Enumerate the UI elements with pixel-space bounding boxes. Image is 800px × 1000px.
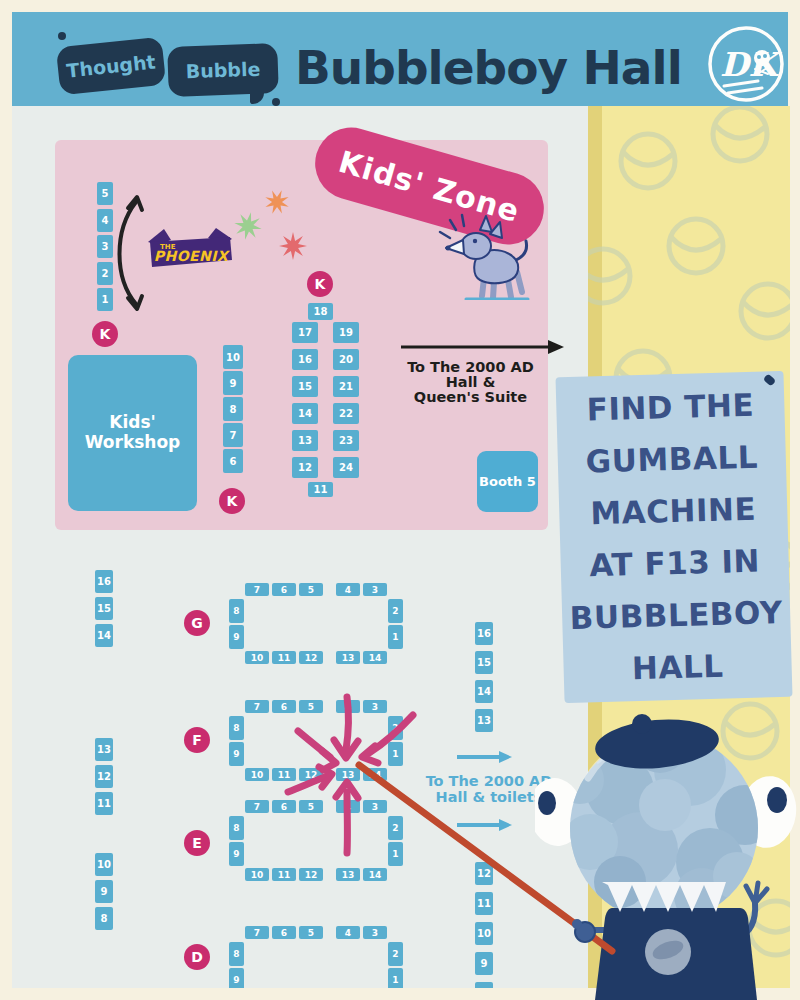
row-badge-g: G bbox=[184, 610, 210, 636]
kids-badge-k: K bbox=[92, 321, 118, 347]
island-right-col: 21 bbox=[388, 599, 403, 649]
row-badge-d: D bbox=[184, 944, 210, 970]
bubbleboy-hall-map: Thought Bubble Bubbleboy Hall DK Kids' Z bbox=[0, 0, 800, 1000]
booth-cell: 6 bbox=[272, 926, 296, 939]
sign-text-line: FIND THE bbox=[556, 378, 785, 436]
booth-cell: 19 bbox=[333, 322, 359, 343]
booth-cell: 13 bbox=[336, 651, 360, 664]
gumball-machine-character bbox=[535, 688, 800, 1000]
row-g-island: 765 43 89 21 101112 1314 bbox=[228, 583, 404, 664]
kids-island-right-column: 192021222324 bbox=[333, 322, 359, 478]
star-green-icon bbox=[231, 209, 264, 242]
booth-cell: 4 bbox=[336, 926, 360, 939]
booth-cell: 14 bbox=[475, 680, 493, 703]
logo-bubble-bubble: Bubble bbox=[167, 43, 279, 97]
gumball-sign: FIND THEGUMBALLMACHINEAT F13 INBUBBLEBOY… bbox=[555, 371, 792, 703]
booth-cell: 5 bbox=[299, 583, 323, 596]
booth-cell: 13 bbox=[95, 738, 113, 761]
booth-cell: 4 bbox=[336, 700, 360, 713]
booth-cell: 10 bbox=[245, 651, 269, 664]
right-wall-booths-8to12: 12111098 bbox=[475, 862, 493, 1000]
left-wall-booths-14to16: 161514 bbox=[95, 570, 113, 647]
booth-cell: 11 bbox=[475, 892, 493, 915]
skull-icon bbox=[754, 50, 770, 66]
booth-cell: 10 bbox=[95, 853, 113, 876]
booth-cell: 22 bbox=[333, 403, 359, 424]
booth-cell: 24 bbox=[333, 457, 359, 478]
row-badge-e: E bbox=[184, 830, 210, 856]
island-top-right: 43 bbox=[336, 583, 387, 596]
booth-cell: 16 bbox=[95, 570, 113, 593]
booth-cell: 7 bbox=[245, 700, 269, 713]
booth-cell: 15 bbox=[95, 597, 113, 620]
booth-cell: 9 bbox=[223, 371, 243, 395]
booth-cell: 2 bbox=[388, 716, 403, 740]
logo-bubble-thought: Thought bbox=[56, 37, 166, 96]
booth-cell: 7 bbox=[245, 800, 269, 813]
booth-cell: 3 bbox=[363, 583, 387, 596]
booth-cell: 8 bbox=[229, 942, 244, 966]
booth-cell: 1 bbox=[388, 625, 403, 649]
kids-island-11to24: 18 171615141312 192021222324 11 bbox=[292, 303, 359, 497]
booth-cell: 1 bbox=[388, 742, 403, 766]
booth-cell: 14 bbox=[363, 768, 387, 781]
booth-cell: 20 bbox=[333, 349, 359, 370]
booth-cell: 14 bbox=[363, 651, 387, 664]
row-f-island: 765 43 89 21 101112 1314 bbox=[228, 700, 404, 781]
sign-text-line: AT F13 IN bbox=[560, 534, 789, 592]
island-top-left: 765 bbox=[245, 700, 323, 713]
booth-cell: 4 bbox=[336, 800, 360, 813]
booth-cell: 2 bbox=[97, 262, 113, 285]
exit-arrow-right-top bbox=[455, 750, 513, 764]
booth-cell: 8 bbox=[229, 716, 244, 740]
island-bottom-left: 101112 bbox=[245, 651, 323, 664]
sign-text-line: GUMBALL bbox=[557, 430, 786, 488]
booth-cell: 5 bbox=[299, 800, 323, 813]
sign-text-line: MACHINE bbox=[559, 482, 788, 540]
booth-cell: 7 bbox=[245, 926, 269, 939]
booth-cell: 2 bbox=[388, 816, 403, 840]
island-right-col: 21 bbox=[388, 816, 403, 866]
booth-cell: 15 bbox=[475, 651, 493, 674]
dk-logo: DK bbox=[704, 20, 788, 108]
booth-cell: 9 bbox=[229, 842, 244, 866]
island-left-col: 89 bbox=[229, 599, 244, 649]
stars-decoration bbox=[225, 182, 320, 267]
booth-cell: 9 bbox=[229, 742, 244, 766]
phoenix-logo: THE PHOENIX bbox=[144, 226, 236, 272]
star-red-icon bbox=[279, 232, 307, 260]
booth-cell: 3 bbox=[363, 926, 387, 939]
kids-booth-column-6to10: 109876 bbox=[223, 345, 243, 473]
booth-cell: 18 bbox=[308, 303, 333, 320]
booth-cell: 11 bbox=[272, 651, 296, 664]
booth-cell: 7 bbox=[223, 423, 243, 447]
booth-cell: 9 bbox=[475, 952, 493, 975]
kids-badge-k: K bbox=[307, 271, 333, 297]
island-bottom-right: 1314 bbox=[336, 651, 387, 664]
booth-cell: 16 bbox=[292, 349, 318, 370]
booth-cell: 12 bbox=[475, 862, 493, 885]
booth-cell: 11 bbox=[272, 868, 296, 881]
booth-5-block: Booth 5 bbox=[477, 451, 538, 512]
island-top-right: 43 bbox=[336, 700, 387, 713]
booth-cell: 2 bbox=[388, 942, 403, 966]
island-bottom-right: 1314 bbox=[336, 868, 387, 881]
island-left-col: 89 bbox=[229, 816, 244, 866]
island-top-left: 765 bbox=[245, 926, 323, 939]
booth-cell: 13 bbox=[292, 430, 318, 451]
island-left-col: 89 bbox=[229, 942, 244, 992]
booth-cell: 10 bbox=[245, 868, 269, 881]
island-bottom-right-f13: 1314 bbox=[336, 768, 387, 781]
header-banner: Thought Bubble Bubbleboy Hall DK bbox=[12, 12, 788, 106]
logo-word-bubble: Bubble bbox=[185, 58, 260, 83]
booth-cell: 13 bbox=[336, 868, 360, 881]
row-e-island: 765 43 89 21 101112 1314 bbox=[228, 800, 404, 881]
sign-text-line: BUBBLEBOY bbox=[561, 586, 790, 644]
booth-cell: 6 bbox=[223, 449, 243, 473]
booth-cell: 8 bbox=[229, 816, 244, 840]
island-right-col: 21 bbox=[388, 716, 403, 766]
booth-cell: 8 bbox=[223, 397, 243, 421]
booth-cell: 14 bbox=[95, 624, 113, 647]
booth-cell: 12 bbox=[299, 768, 323, 781]
logo-bubble-tail-icon bbox=[250, 92, 264, 104]
bark-lines-icon bbox=[440, 215, 464, 238]
booth-cell: 2 bbox=[388, 599, 403, 623]
kids-workshop-label-line1: Kids' bbox=[109, 413, 156, 433]
booth-cell: 4 bbox=[336, 583, 360, 596]
kids-booth-column-1to5: 54321 bbox=[97, 182, 113, 311]
booth-cell: 16 bbox=[475, 622, 493, 645]
exit-arrow-right-bottom bbox=[455, 818, 513, 832]
booth-cell: 1 bbox=[388, 842, 403, 866]
phoenix-name-text: PHOENIX bbox=[154, 248, 230, 264]
booth-cell: 12 bbox=[292, 457, 318, 478]
machine-claw bbox=[746, 883, 767, 903]
booth-cell: 3 bbox=[97, 235, 113, 258]
kids-workshop-label-line2: Workshop bbox=[85, 433, 181, 453]
left-wall-booths-8to10: 1098 bbox=[95, 853, 113, 930]
dog-illustration bbox=[432, 212, 532, 300]
booth-cell: 10 bbox=[223, 345, 243, 369]
booth-cell: 12 bbox=[95, 765, 113, 788]
island-bottom-left: 101112 bbox=[245, 768, 323, 781]
dk-monogram-text: DK bbox=[720, 45, 783, 84]
booth-cell: 11 bbox=[95, 792, 113, 815]
island-right-col: 21 bbox=[388, 942, 403, 992]
booth-cell: 10 bbox=[245, 768, 269, 781]
booth-cell: 5 bbox=[97, 182, 113, 205]
booth-cell: 1 bbox=[97, 288, 113, 311]
exit-note-line: Hall & bbox=[388, 375, 553, 390]
island-top-left: 765 bbox=[245, 583, 323, 596]
booth-cell: 6 bbox=[272, 583, 296, 596]
booth-cell: 11 bbox=[272, 768, 296, 781]
booth-cell: 5 bbox=[299, 700, 323, 713]
booth-cell: 14 bbox=[363, 868, 387, 881]
booth-cell: 13 bbox=[336, 768, 360, 781]
booth-cell: 23 bbox=[333, 430, 359, 451]
row-badge-f: F bbox=[184, 727, 210, 753]
booth-cell: 8 bbox=[95, 907, 113, 930]
right-wall-booths-13to16: 16151413 bbox=[475, 622, 493, 732]
booth-cell: 15 bbox=[292, 376, 318, 397]
booth-cell: 12 bbox=[299, 651, 323, 664]
logo-dot-icon bbox=[272, 98, 280, 106]
exit-arrow-kids-zone bbox=[398, 338, 566, 356]
exit-note-kids-zone: To The 2000 AD Hall & Queen's Suite bbox=[388, 360, 553, 405]
kids-workshop-block: Kids' Workshop bbox=[68, 355, 197, 511]
booth-cell: 12 bbox=[299, 868, 323, 881]
island-bottom-left: 101112 bbox=[245, 868, 323, 881]
booth-cell: 4 bbox=[97, 209, 113, 232]
booth-cell: 6 bbox=[272, 800, 296, 813]
island-top-right: 43 bbox=[336, 926, 387, 939]
island-left-col: 89 bbox=[229, 716, 244, 766]
kids-island-left-column: 171615141312 bbox=[292, 322, 318, 478]
exit-note-line: To The 2000 AD bbox=[388, 360, 553, 375]
logo-word-thought: Thought bbox=[65, 50, 156, 81]
booth-cell: 9 bbox=[229, 625, 244, 649]
booth-cell: 5 bbox=[299, 926, 323, 939]
booth-cell: 21 bbox=[333, 376, 359, 397]
logo-dot-icon bbox=[58, 32, 66, 40]
booth-cell: 7 bbox=[245, 583, 269, 596]
left-wall-booths-11to13: 131211 bbox=[95, 738, 113, 815]
star-orange-icon bbox=[261, 186, 294, 219]
booth-cell: 14 bbox=[292, 403, 318, 424]
exit-note-line: Queen's Suite bbox=[388, 390, 553, 405]
hall-title: Bubbleboy Hall bbox=[295, 40, 715, 95]
kids-badge-k: K bbox=[219, 488, 245, 514]
booth-cell: 11 bbox=[308, 482, 333, 497]
booth-cell: 3 bbox=[363, 700, 387, 713]
island-top-left: 765 bbox=[245, 800, 323, 813]
booth-cell: 8 bbox=[229, 599, 244, 623]
booth-cell: 6 bbox=[272, 700, 296, 713]
booth-cell: 9 bbox=[95, 880, 113, 903]
booth-cell: 13 bbox=[475, 709, 493, 732]
booth-cell: 17 bbox=[292, 322, 318, 343]
booth-cell: 10 bbox=[475, 922, 493, 945]
island-top-right: 43 bbox=[336, 800, 387, 813]
booth-cell: 3 bbox=[363, 800, 387, 813]
